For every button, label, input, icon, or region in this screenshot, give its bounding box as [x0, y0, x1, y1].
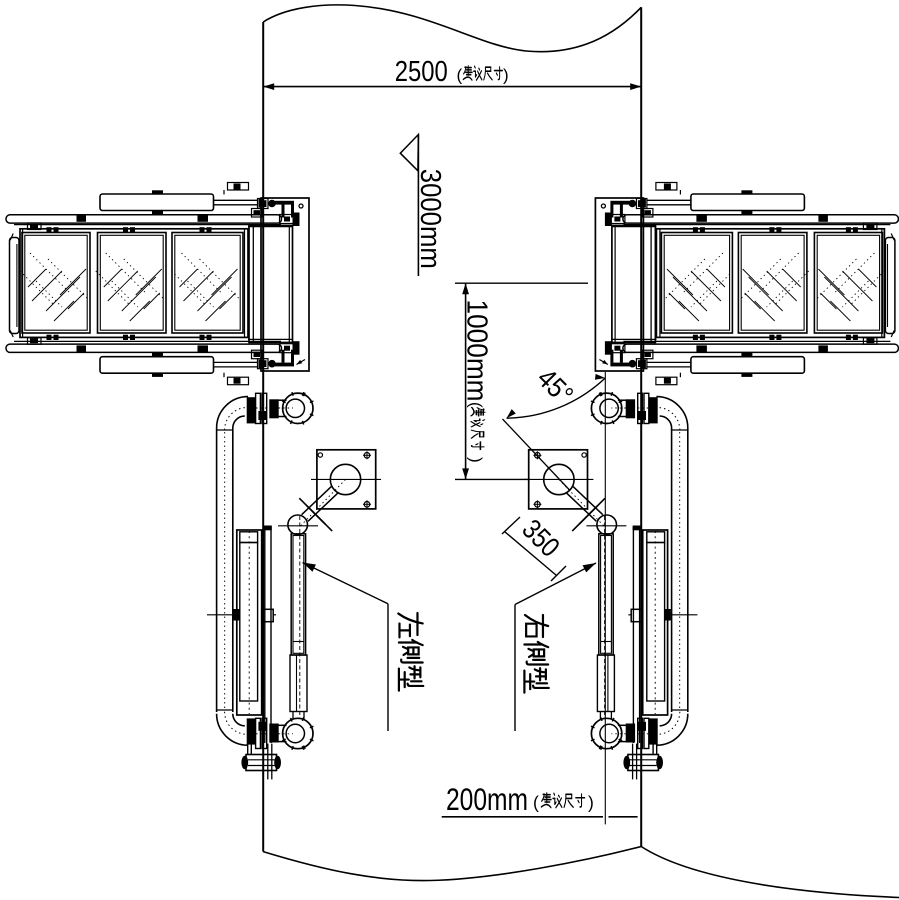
svg-text:200mm: 200mm: [446, 781, 528, 817]
svg-text:): ): [503, 66, 509, 85]
svg-text:2500: 2500: [395, 56, 448, 88]
svg-text:): ): [467, 457, 486, 463]
svg-text:(: (: [467, 402, 486, 408]
svg-text:1000mm: 1000mm: [461, 300, 493, 402]
svg-text:3000mm: 3000mm: [414, 169, 446, 269]
svg-text:(: (: [533, 793, 539, 813]
svg-text:(: (: [457, 66, 463, 85]
svg-text:): ): [588, 793, 594, 813]
